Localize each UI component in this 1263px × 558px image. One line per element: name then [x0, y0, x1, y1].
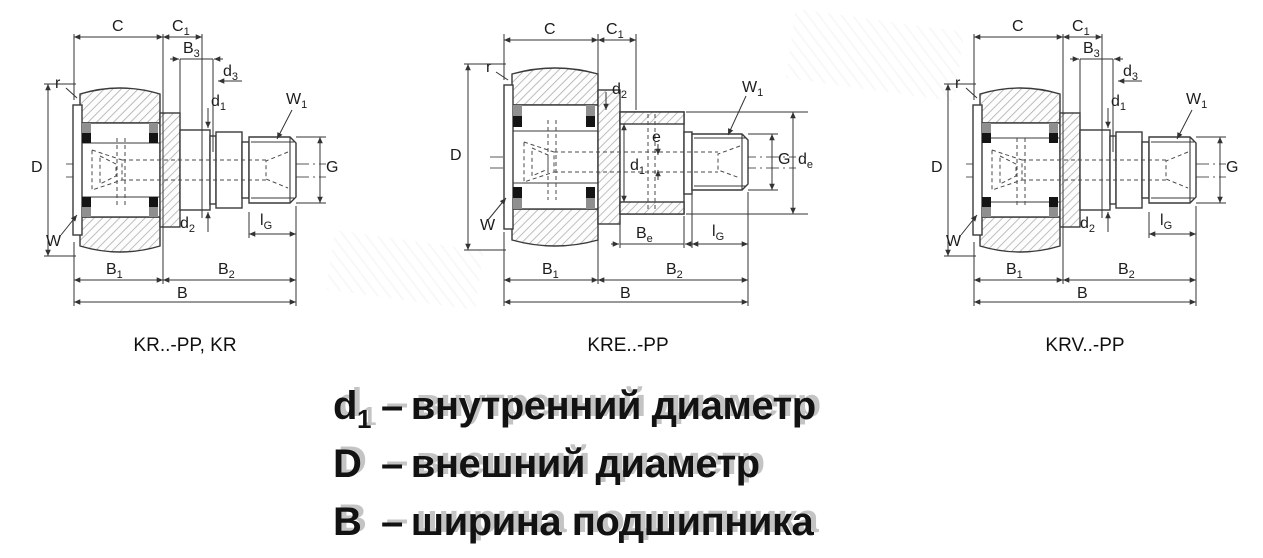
dim-label-d1: d1 [211, 94, 226, 113]
diagram-krv: C C1 B3 d3 d1 W1 r D G d2 lG W B1 B2 B [930, 10, 1240, 320]
dim-label-d3: d3 [1123, 64, 1138, 83]
dim-label-b: B [177, 286, 188, 305]
dim-label-c1: C1 [606, 22, 624, 41]
dim-label-d3: d3 [223, 64, 238, 83]
dim-label-g: G [1226, 160, 1238, 179]
dim-label-d1: d1 [630, 158, 645, 177]
legend-symbol: D [333, 442, 381, 500]
legend-definition: внешний диаметр [411, 442, 760, 486]
dim-label-de: de [798, 152, 813, 171]
legend-item: D–внешний диаметр [333, 442, 816, 500]
dim-label-c1: C1 [1072, 19, 1090, 38]
dim-label-b3: B3 [1083, 41, 1100, 60]
dim-label-c: C [112, 19, 124, 38]
legend: d1–внутренний диаметр D–внешний диаметр … [333, 384, 816, 558]
dim-label-w: W [946, 234, 961, 253]
dim-label-b2: B2 [1118, 262, 1135, 281]
page: { "colors": { "line": "#3a3a3a", "hatch"… [0, 0, 1263, 551]
dim-label-c: C [544, 22, 556, 41]
dim-label-b3: B3 [183, 41, 200, 60]
legend-dash: – [381, 384, 411, 428]
dim-label-r: r [486, 60, 491, 79]
dim-label-r: r [955, 76, 960, 95]
dim-label-b2: B2 [666, 262, 683, 281]
dim-label-c: C [1012, 19, 1024, 38]
dim-label-w1: W1 [1186, 92, 1207, 111]
diagram-kr: C C1 B3 d3 d1 W1 r D G d2 lG W B1 B2 B [30, 10, 340, 320]
kre-drawing-svg [440, 10, 816, 320]
dim-label-d: D [450, 148, 462, 167]
dim-label-w1: W1 [286, 92, 307, 111]
dim-label-b1: B1 [106, 262, 123, 281]
legend-symbol: B [333, 500, 381, 558]
dim-label-b: B [620, 286, 631, 305]
dim-label-e: e [652, 130, 661, 149]
dim-label-w: W [46, 234, 61, 253]
dim-label-g: G [326, 160, 338, 179]
dim-label-d: D [931, 160, 943, 179]
dim-label-b: B [1077, 286, 1088, 305]
legend-definition: ширина подшипника [411, 500, 814, 544]
dim-label-w: W [480, 218, 495, 237]
legend-item: B–ширина подшипника [333, 500, 816, 558]
legend-item: d1–внутренний диаметр [333, 384, 816, 442]
diagram-caption-kr: KR..-PP, KR [30, 335, 340, 357]
dim-label-lg: lG [1160, 213, 1172, 232]
legend-symbol: d1 [333, 384, 381, 442]
dim-label-b1: B1 [542, 262, 559, 281]
dim-label-be: Be [636, 226, 653, 245]
diagram-kre: C C1 r D d2 W1 e d1 G de W Be lG B1 B2 B [440, 10, 816, 320]
dim-label-w1: W1 [742, 80, 763, 99]
dim-label-b1: B1 [1006, 262, 1023, 281]
diagram-caption-kre: KRE..-PP [440, 335, 816, 357]
legend-dash: – [381, 442, 411, 486]
dim-label-b2: B2 [218, 262, 235, 281]
dim-label-d: D [31, 160, 43, 179]
dim-label-r: r [55, 76, 60, 95]
legend-dash: – [381, 500, 411, 544]
dim-label-d2: d2 [612, 82, 627, 101]
dim-label-d2: d2 [1080, 216, 1095, 235]
dim-label-d1: d1 [1111, 94, 1126, 113]
dim-label-lg: lG [260, 213, 272, 232]
dim-label-d2: d2 [180, 216, 195, 235]
legend-definition: внутренний диаметр [411, 384, 816, 428]
diagram-caption-krv: KRV..-PP [930, 335, 1240, 357]
dim-label-lg: lG [712, 224, 724, 243]
dim-label-c1: C1 [172, 19, 190, 38]
dim-label-g: G [778, 152, 790, 171]
